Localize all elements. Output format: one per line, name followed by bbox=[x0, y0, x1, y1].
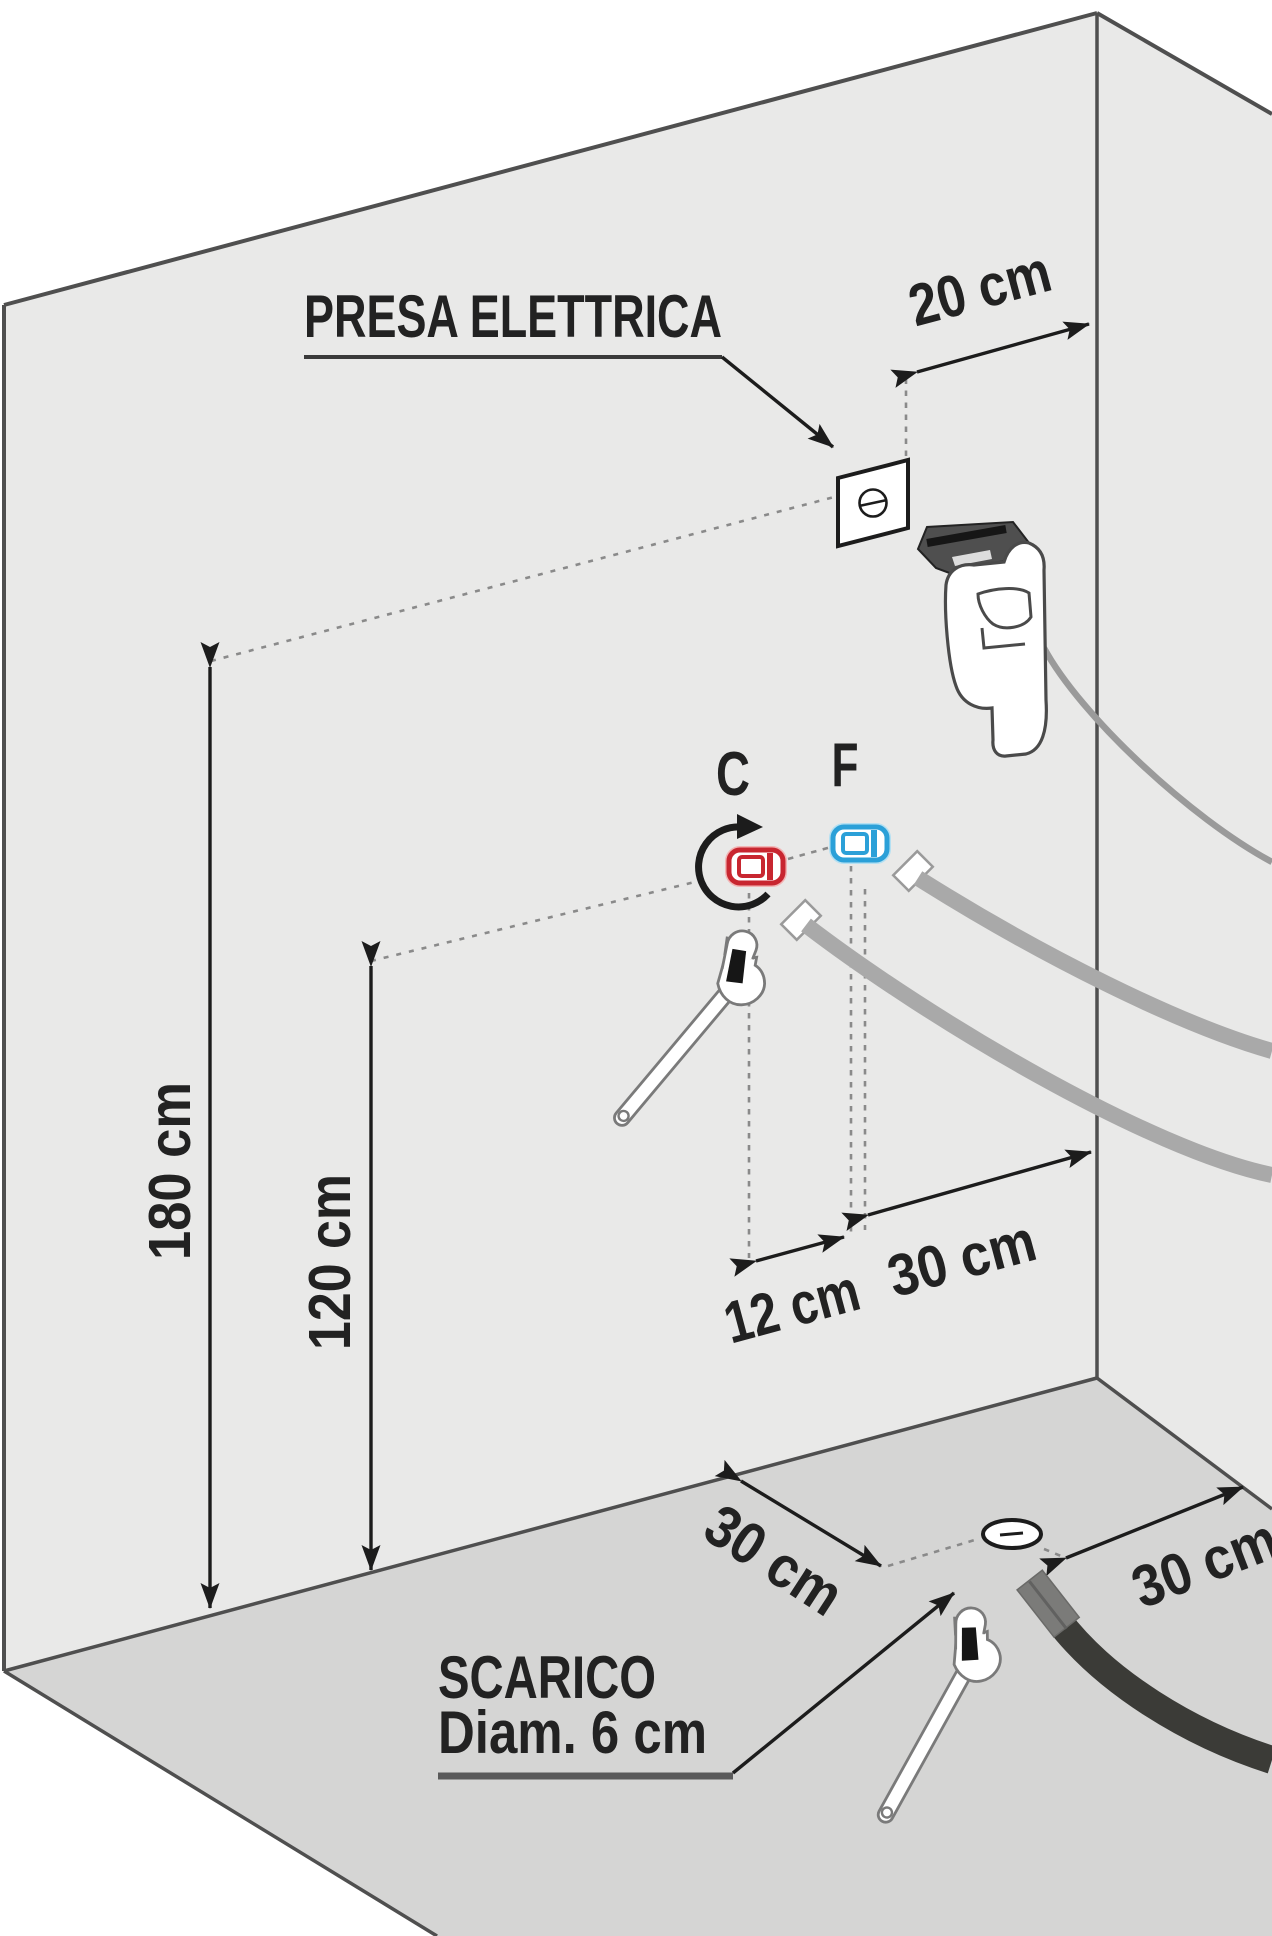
svg-text:120 cm: 120 cm bbox=[297, 1174, 363, 1350]
svg-text:Diam. 6 cm: Diam. 6 cm bbox=[438, 1699, 707, 1766]
svg-text:180 cm: 180 cm bbox=[137, 1082, 203, 1260]
svg-text:PRESA ELETTRICA: PRESA ELETTRICA bbox=[304, 283, 722, 350]
svg-text:F: F bbox=[832, 731, 859, 800]
svg-text:C: C bbox=[716, 740, 750, 809]
